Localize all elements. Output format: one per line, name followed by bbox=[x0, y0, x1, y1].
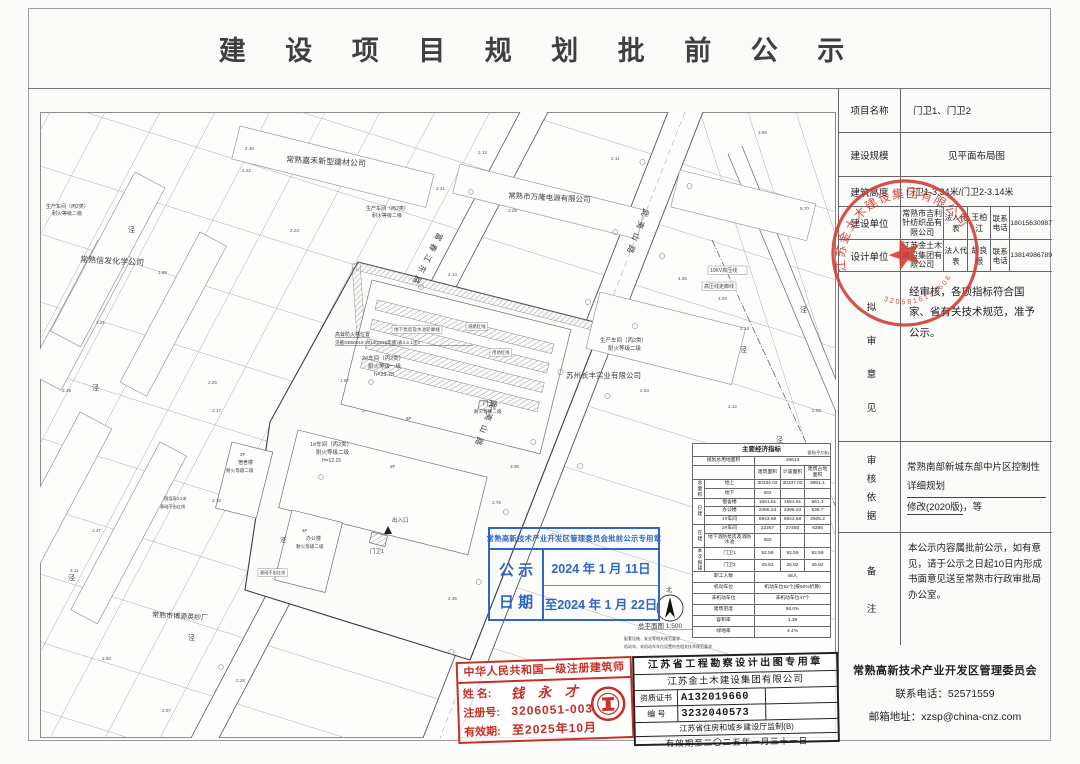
design-institute-stamp: 江苏省工程勘察设计出图专用章 江苏金土木建设集团有限公司 资质证书 A13201… bbox=[632, 652, 840, 746]
econ-cell: 1.29 bbox=[755, 616, 831, 627]
map-label: 总平面图 1:500 bbox=[638, 621, 682, 630]
econ-cell bbox=[781, 489, 805, 498]
map-label: 地下泵房及水池轮廓线 bbox=[394, 326, 440, 333]
spot-elevation: 2.29 bbox=[508, 208, 517, 213]
econ-cell: 绿地率 bbox=[693, 627, 755, 638]
econ-cell: 48人 bbox=[755, 572, 831, 583]
map-label: 5F bbox=[406, 416, 412, 421]
map-label: 泾 bbox=[128, 226, 135, 234]
econ-cell: 门卫2 bbox=[705, 560, 755, 572]
authority-name: 常熟高新技术产业开发区管理委员会 bbox=[853, 662, 1037, 678]
cert-number: A132019660 bbox=[678, 688, 766, 705]
econ-cell: 职工人数 bbox=[693, 572, 755, 583]
map-label: 泾 bbox=[68, 574, 75, 582]
map-label: 宿舍楼 bbox=[238, 459, 253, 466]
map-label: 2#车间（丙2类） bbox=[362, 354, 404, 362]
map-label: 生产车间（丙2类） bbox=[46, 203, 89, 210]
econ-cell: 办公楼 bbox=[705, 507, 755, 516]
econ-cell: 8801.1 bbox=[805, 480, 831, 489]
stamp-left-labels: 公 示 日 期 bbox=[490, 550, 544, 621]
serial-number: 3232040573 bbox=[678, 704, 766, 721]
econ-cell: 56.0% bbox=[755, 605, 831, 616]
econ-cell: 机动车位52个(按50%折算) bbox=[755, 583, 831, 594]
map-label: 泾 bbox=[188, 634, 195, 642]
spot-elevation: 5.70 bbox=[800, 206, 809, 211]
designer-tel: 13814986789 bbox=[1010, 240, 1052, 271]
econ-cell bbox=[693, 465, 755, 480]
spot-elevation: 4.53 bbox=[640, 388, 649, 393]
econ-cell bbox=[805, 489, 831, 498]
econ-cell: 52.59 bbox=[755, 548, 781, 560]
econ-cell: 容积率 bbox=[693, 616, 755, 627]
econ-cell: 地上 bbox=[705, 480, 755, 489]
spot-elevation: 2.28 bbox=[236, 678, 245, 683]
site-plan-drawing: 常熟嘉禾新型建材公司常熟市万隆电源有限公司常熟信发化学公司常熟市博源英纱厂苏州长… bbox=[40, 112, 836, 738]
spot-elevation: 2.25 bbox=[208, 380, 217, 385]
econ-cell: 561.3 bbox=[805, 498, 831, 507]
design-company-seal: 江苏金土木建设集团有限公司 3205816124606 bbox=[818, 166, 992, 340]
spot-elevation: 2.07 bbox=[162, 708, 171, 713]
econ-cell: 1551.51 bbox=[755, 498, 781, 507]
authority-tel: 联系电话：52571559 bbox=[895, 686, 994, 701]
econ-cell: 22267 bbox=[755, 524, 781, 533]
econ-cell: 机动车位 bbox=[693, 583, 755, 594]
public-notice-date-stamp: 常熟高新技术产业开发区管理委员会批前公示专用章 公 示 日 期 2024 年 1… bbox=[488, 527, 660, 621]
spot-elevation: 3.56 bbox=[758, 130, 767, 135]
spot-elevation: 2.12 bbox=[478, 150, 487, 155]
econ-cell: 非机动车位 bbox=[693, 594, 755, 605]
econ-cell: 1#车间 bbox=[705, 516, 755, 525]
econ-cell: 建筑密度 bbox=[693, 605, 755, 616]
map-label: 办公楼 bbox=[306, 535, 321, 542]
spot-elevation: 2.11 bbox=[70, 568, 79, 573]
econ-cell bbox=[805, 533, 831, 548]
architect-name: 钱 永 才 bbox=[510, 679, 583, 702]
map-label: 10KV高压线 bbox=[710, 267, 737, 274]
registered-architect-stamp: 中华人民共和国一级注册建筑师 姓 名:钱 永 才 注册号:3206051-003… bbox=[456, 656, 635, 744]
econ-cell: 2#车间 bbox=[705, 524, 755, 533]
tel-label: 联系 电话 bbox=[991, 207, 1010, 239]
map-label: 耐火等级二级 bbox=[316, 448, 350, 456]
econ-cell: 建筑面积 bbox=[755, 465, 781, 480]
map-label: 生产车间（丙2类） bbox=[600, 336, 647, 344]
architect-valid: 至2025年10月 bbox=[512, 718, 598, 738]
label-project-name: 项目名称 bbox=[839, 88, 901, 132]
econ-cell: 30334.02 bbox=[755, 480, 781, 489]
review-basis: 常熟南部新城东部中片区控制性详细规划 修改(2020版)，等 bbox=[901, 442, 1052, 532]
econ-cell bbox=[781, 533, 805, 548]
econ-cell: 门卫1 bbox=[705, 548, 755, 560]
econ-cell: 25.82 bbox=[805, 560, 831, 572]
seal-number: 3205816124606 bbox=[881, 272, 958, 316]
map-label: 2F bbox=[240, 452, 246, 457]
remark-text: 本公示内容属批前公示，如有意见，请于公示之日起10日内形成书面意见送至常熟市行政… bbox=[901, 533, 1052, 645]
spot-elevation: 2.19 bbox=[62, 388, 71, 393]
spot-elevation: 1.98 bbox=[158, 270, 167, 275]
map-label: 出入口 bbox=[392, 516, 409, 524]
spot-elevation: 1.47 bbox=[92, 528, 101, 533]
notice-date-to: 至2024 年 1 月 22日 bbox=[544, 586, 658, 621]
econ-cell: 2396.23 bbox=[755, 507, 781, 516]
map-label: 耐火等级二级 bbox=[296, 543, 324, 550]
econ-cell: 5943.58 bbox=[755, 516, 781, 525]
econ-cell: 26613 bbox=[755, 457, 831, 466]
econ-cell: 本次报建 bbox=[693, 548, 705, 572]
econ-cell: 主要经济指标面积(平方米) bbox=[693, 444, 831, 457]
tel-label: 联系 电话 bbox=[991, 240, 1010, 271]
econ-cell: 地下 bbox=[705, 489, 755, 498]
econ-cell: 30337.02 bbox=[781, 480, 805, 489]
econ-cell: 25.82 bbox=[781, 560, 805, 572]
map-label: 苏州长丰实业有限公司 bbox=[566, 370, 641, 380]
econ-cell: 52.59 bbox=[805, 548, 831, 560]
spot-elevation: 4.95 bbox=[678, 276, 687, 281]
map-label: 1#车间（丙2类） bbox=[310, 440, 352, 448]
stamp-validity: 有效期至二〇二五年一月三十一日 bbox=[636, 733, 838, 751]
econ-cell: 计容面积 bbox=[781, 465, 805, 480]
econ-cell: 5943.58 bbox=[781, 516, 805, 525]
econ-cell: 已建 bbox=[693, 498, 705, 524]
page-title: 建 设 项 目 规 划 批 前 公 示 bbox=[219, 29, 861, 68]
map-label: H=12.15 bbox=[322, 458, 341, 464]
map-label: 门卫1 bbox=[370, 547, 384, 555]
map-label: 北 bbox=[666, 586, 672, 594]
map-label: 泾 bbox=[280, 536, 286, 544]
map-label: 泾 bbox=[92, 384, 99, 392]
spot-elevation: 2.11 bbox=[611, 156, 620, 161]
spot-elevation: 2.21 bbox=[96, 320, 105, 325]
econ-cell: 建筑占地面积 bbox=[805, 465, 831, 480]
map-label: 基础不出红线 bbox=[160, 503, 186, 510]
stamp-title: 常熟高新技术产业开发区管理委员会批前公示专用章 bbox=[490, 529, 658, 550]
label-basis: 审核依据 bbox=[839, 442, 901, 532]
map-label: 机动车、非机动车车位设置符合相关技术规范要求 bbox=[624, 643, 712, 649]
econ-cell: 规划总用地面积 bbox=[693, 457, 755, 466]
spot-elevation: 2.14 bbox=[448, 272, 457, 277]
map-label: 围墙高2.2米 bbox=[164, 495, 187, 502]
map-label: 耐火等级二级 bbox=[372, 212, 402, 219]
map-label: 耐火等级二级 bbox=[474, 408, 502, 415]
spot-elevation: 2.50 bbox=[102, 656, 111, 661]
architect-seal-icon bbox=[589, 684, 628, 723]
spot-elevation: 2.23 bbox=[290, 228, 299, 233]
spot-elevation: 2.13 bbox=[740, 326, 749, 331]
architect-reg-no: 3206051-003 bbox=[511, 701, 593, 718]
svg-text:3205816124606: 3205816124606 bbox=[881, 272, 958, 316]
spot-elevation: 2.76 bbox=[492, 500, 501, 505]
econ-cell: 536.7 bbox=[805, 507, 831, 516]
econ-cell: 2396.23 bbox=[781, 507, 805, 516]
econ-cell: 总面积 bbox=[693, 480, 705, 498]
map-label: 见截GB50016-2014(2018年版)表3.4.1注3 bbox=[335, 339, 420, 346]
map-label: 道路红线 bbox=[468, 323, 486, 330]
map-label: 4F bbox=[302, 528, 308, 533]
econ-cell: 282 bbox=[755, 533, 781, 548]
map-label: 生产车间（丙2类） bbox=[366, 205, 409, 212]
spot-elevation: 4.02 bbox=[718, 296, 727, 301]
project-name: 门卫1、门卫2 bbox=[901, 88, 1052, 132]
label-remark: 备注 bbox=[839, 533, 901, 645]
authority-email: 邮箱地址：xzsp@china-cnz.com bbox=[869, 709, 1021, 724]
spot-elevation: 2.10 bbox=[212, 498, 221, 503]
spot-elevation: 2.22 bbox=[242, 168, 251, 173]
econ-cell: 1551.51 bbox=[781, 498, 805, 507]
economic-indicators-table: 主要经济指标面积(平方米)规划总用地面积26613建筑面积计容面积建筑占地面积总… bbox=[692, 443, 830, 638]
spot-elevation: 2.17 bbox=[212, 408, 221, 413]
econ-cell: 25.82 bbox=[755, 560, 781, 572]
map-label: 基础不出红线 bbox=[260, 569, 286, 576]
map-label: 2F bbox=[390, 464, 396, 469]
map-label: 高耸防火墙位置 bbox=[335, 331, 370, 338]
map-label: 门卫2 bbox=[483, 399, 497, 407]
econ-cell: 宿舍楼 bbox=[705, 498, 755, 507]
econ-cell: 27450 bbox=[781, 524, 805, 533]
econ-cell: 非机动车位47个 bbox=[755, 594, 831, 605]
econ-cell: 6285 bbox=[805, 524, 831, 533]
authority-contact-block: 常熟高新技术产业开发区管理委员会 联系电话：52571559 邮箱地址：xzsp… bbox=[838, 645, 1052, 741]
star-icon bbox=[885, 233, 926, 272]
title-band: 建 设 项 目 规 划 批 前 公 示 bbox=[28, 8, 1051, 89]
map-label: 高压线走廊线 bbox=[704, 283, 734, 290]
map-label: 耐火等级二级 bbox=[608, 344, 642, 352]
notice-date-from: 2024 年 1 月 11日 bbox=[544, 550, 658, 586]
map-label: 泾 bbox=[800, 306, 807, 314]
map-label: 用地红线 bbox=[492, 349, 510, 356]
north-arrow-icon bbox=[657, 595, 683, 621]
map-label: 配套设施、安全等相关规范要求 bbox=[624, 635, 680, 641]
econ-cell: 地下消防泵房及消防水池 bbox=[705, 533, 755, 548]
map-label: 耐火等级二级 bbox=[52, 210, 82, 217]
econ-cell: 282 bbox=[755, 489, 781, 498]
spot-elevation: 2.41 bbox=[436, 186, 445, 191]
econ-cell: 4.4% bbox=[755, 627, 831, 638]
map-label: 泾 bbox=[740, 346, 747, 354]
econ-cell: 2505.2 bbox=[805, 516, 831, 525]
map-label: h=23.75 bbox=[374, 372, 394, 378]
builder-tel: 18015630987 bbox=[1010, 207, 1052, 239]
site-plan-map: 常熟嘉禾新型建材公司常熟市万隆电源有限公司常熟信发化学公司常熟市博源英纱厂苏州长… bbox=[40, 112, 836, 738]
spot-elevation: 3.05 bbox=[510, 464, 519, 469]
map-label: 耐火等级一级 bbox=[368, 362, 402, 370]
spot-elevation: 2.46 bbox=[245, 146, 254, 151]
econ-cell: 在建 bbox=[693, 524, 705, 547]
spot-elevation: 2.45 bbox=[448, 596, 457, 601]
spot-elevation: 2.09 bbox=[812, 408, 821, 413]
spot-elevation: 1.97 bbox=[340, 378, 349, 383]
document-sheet: 建 设 项 目 规 划 批 前 公 示 bbox=[0, 0, 1080, 764]
map-label: 耐火等级二级 bbox=[226, 467, 254, 474]
spot-elevation: 2.12 bbox=[728, 404, 737, 409]
econ-cell: 52.59 bbox=[781, 548, 805, 560]
